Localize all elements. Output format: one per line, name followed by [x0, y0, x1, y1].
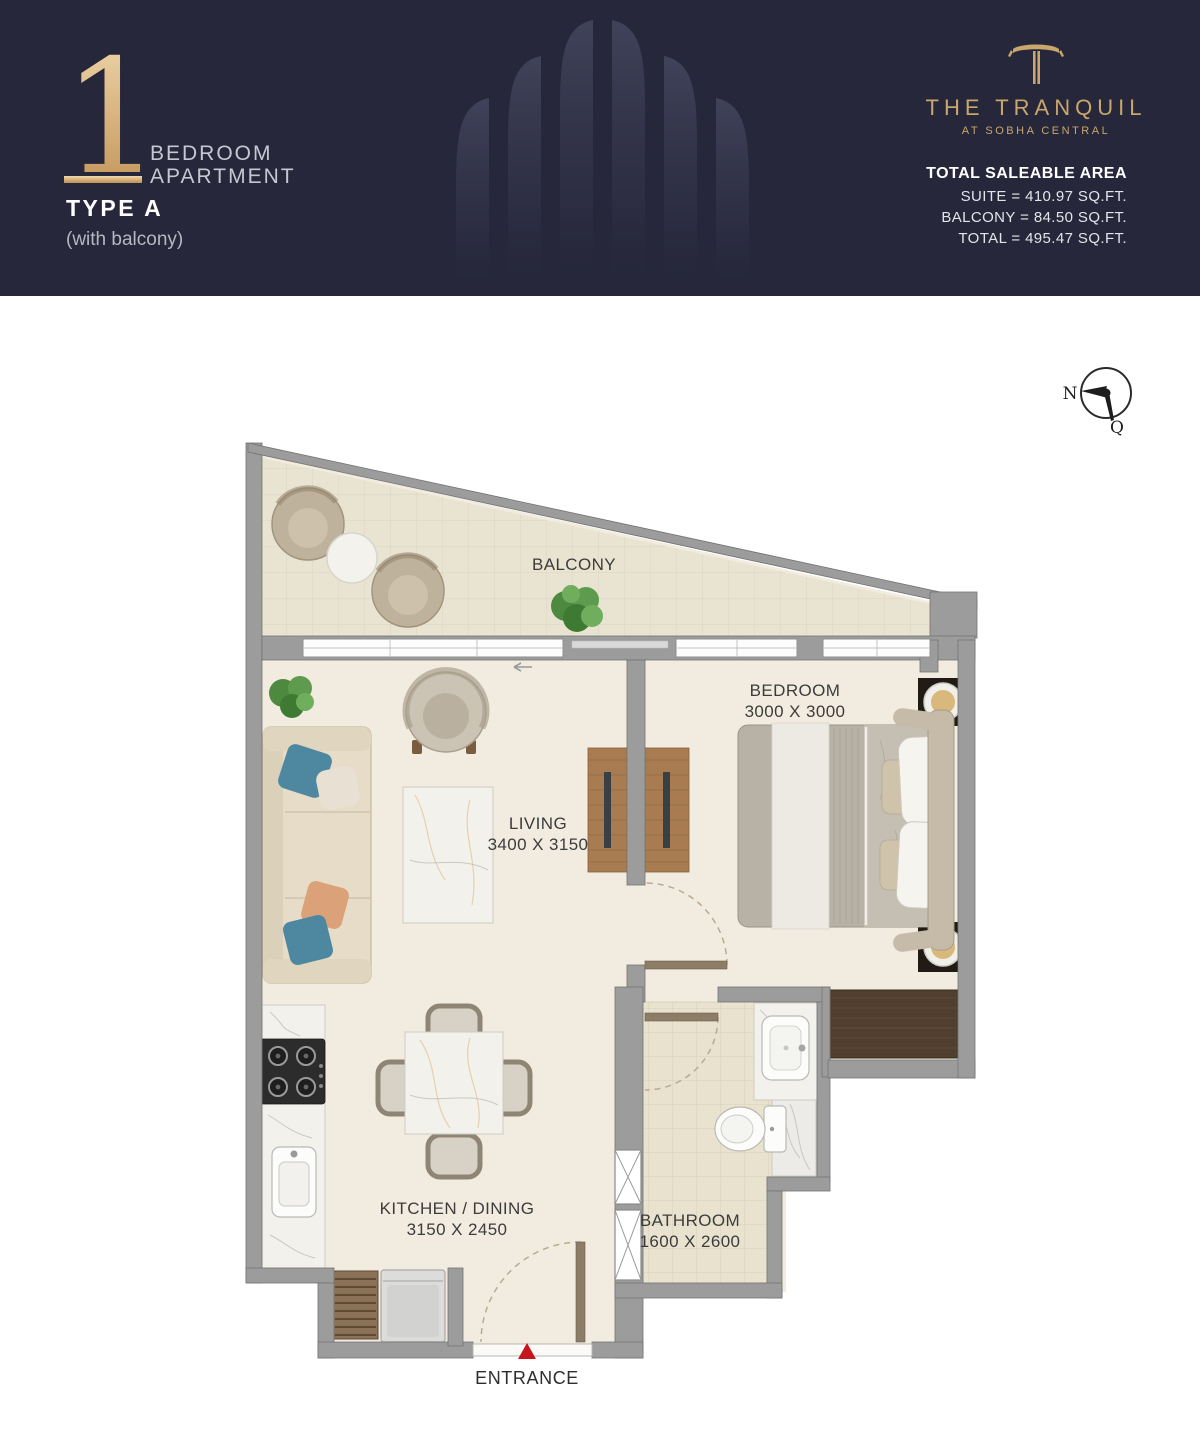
marble-rug [403, 787, 493, 923]
unit-number-underline [64, 176, 142, 183]
floor-plan-page: 1 BEDROOM APARTMENT TYPE A (with balcony… [0, 0, 1200, 1453]
balcony-table [327, 533, 377, 583]
kitchen-sink [272, 1147, 316, 1217]
window [676, 639, 797, 657]
header-banner: 1 BEDROOM APARTMENT TYPE A (with balcony… [0, 0, 1200, 296]
unit-type-line2: APARTMENT [150, 165, 296, 188]
living-dims: 3400 X 3150 [488, 835, 589, 854]
toilet [715, 1106, 786, 1152]
brand-name: THE TRANQUIL [926, 95, 1147, 120]
sliding-door-panel [572, 641, 668, 648]
cooktop [260, 1039, 325, 1104]
kitchen-counter [260, 1005, 325, 1268]
kitchen-label: KITCHEN / DINING [380, 1199, 535, 1218]
kitchen-dims: 3150 X 2450 [407, 1220, 508, 1239]
compass-qibla-label: Q [1110, 418, 1124, 438]
bed [738, 707, 954, 953]
window [303, 639, 563, 657]
doormat [333, 1271, 378, 1339]
type-note: (with balcony) [66, 229, 183, 250]
dining-chair [428, 1135, 480, 1177]
entrance-label: ENTRANCE [475, 1368, 579, 1388]
washing-machine [381, 1270, 445, 1342]
wardrobe [830, 990, 958, 1058]
area-line-total: TOTAL = 495.47 SQ.FT. [958, 230, 1127, 247]
bathroom-label: BATHROOM [640, 1211, 740, 1230]
window [823, 639, 930, 657]
closet-shaft [615, 1210, 641, 1280]
bedroom-dims: 3000 X 3000 [745, 702, 846, 721]
balcony-chair [372, 555, 444, 627]
floor-plan-drawing: N Q [0, 296, 1200, 1453]
living-label: LIVING [509, 814, 567, 833]
sofa [263, 727, 371, 983]
hall-closets [615, 1150, 641, 1280]
area-title: TOTAL SALEABLE AREA [926, 165, 1127, 182]
brand-subtitle: AT SOBHA CENTRAL [962, 125, 1110, 137]
headboard [928, 710, 954, 950]
type-label: TYPE A [66, 195, 163, 221]
tv-console [588, 748, 627, 872]
compass-north-label: N [1063, 384, 1078, 404]
tv-console [645, 748, 689, 872]
balcony-label: BALCONY [532, 555, 616, 574]
closet-shaft [615, 1150, 641, 1204]
bathroom-dims: 1600 X 2600 [640, 1232, 741, 1251]
bedroom-label: BEDROOM [750, 681, 841, 700]
dining-table [405, 1032, 503, 1134]
area-line-suite: SUITE = 410.97 SQ.FT. [961, 188, 1127, 205]
area-line-balcony: BALCONY = 84.50 SQ.FT. [941, 209, 1127, 226]
unit-type-line1: BEDROOM [150, 142, 273, 165]
bathroom-vanity [754, 1003, 817, 1100]
compass: N Q [1063, 368, 1131, 438]
armchair [406, 671, 486, 754]
